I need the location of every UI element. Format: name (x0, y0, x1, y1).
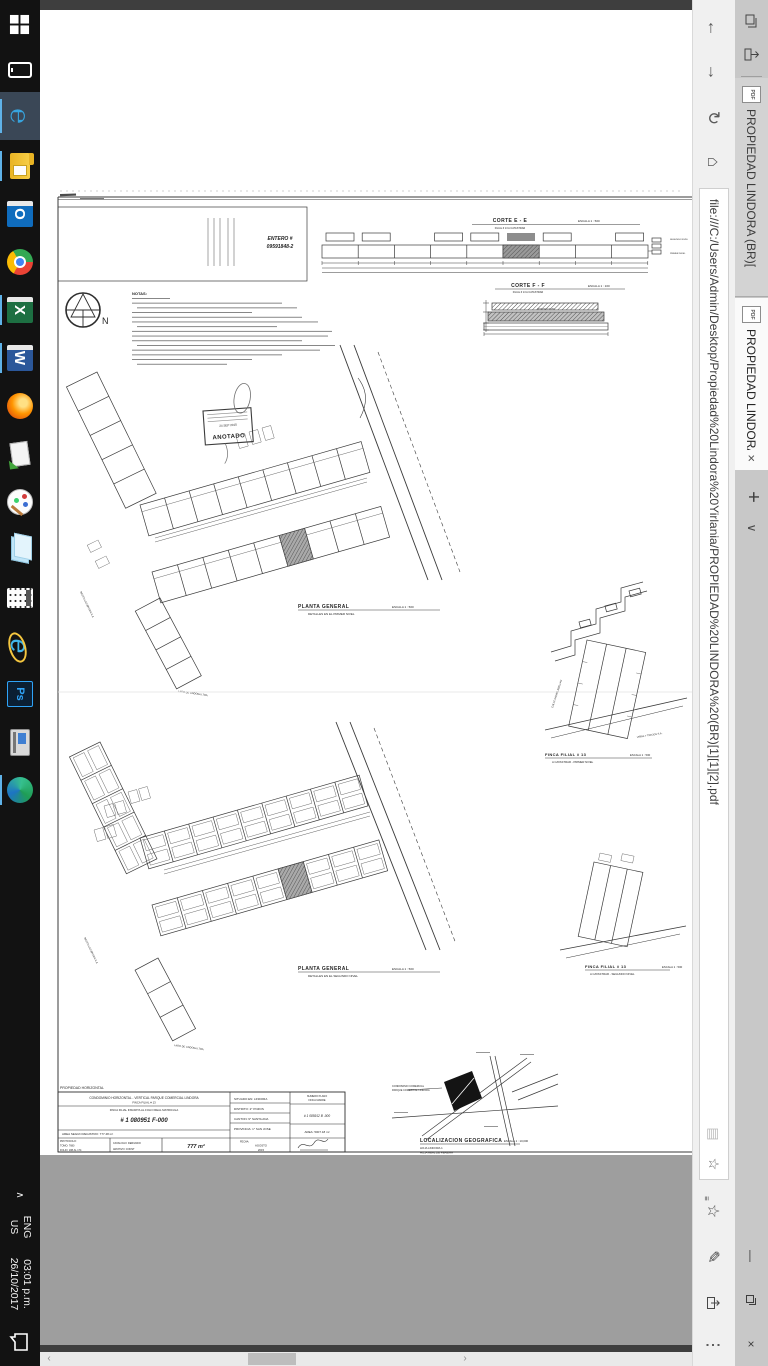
browser-tab-1[interactable]: PDF PROPIEDAD LINDORA (BR)[ (735, 78, 768, 297)
word-icon: W (7, 345, 33, 371)
mail-icon (9, 441, 30, 467)
tb-line2: FINCA FILIAL # 13 (132, 1101, 156, 1105)
finca2-scale: ESCALA 1 : 500 (662, 965, 683, 969)
folder-icon (10, 153, 30, 179)
neighbor-resto-1: RESTO LAS BRISAS S.A. (79, 591, 95, 619)
taskbar-word[interactable]: W (0, 336, 40, 380)
map-pointer-line1: CONDOMINIO COMERCIAL (392, 1085, 425, 1088)
calculator-icon (7, 588, 33, 608)
tb-plano-madre: # 1 085912 B -000 (304, 1114, 330, 1118)
taskbar-mail[interactable] (0, 432, 40, 476)
finca2-sub: A CATASTRAR - SEGUNDO NIVEL (590, 972, 635, 976)
corte-f-scale: ESCALA 1 : 100 (588, 284, 610, 288)
taskbar-outlook[interactable]: O (0, 192, 40, 236)
chrome-icon (7, 249, 33, 275)
edge-address-bar: ← → ↻ ⌂ file:///C:/Users/Admin/Desktop/P… (692, 0, 735, 1366)
globe-icon (7, 777, 33, 803)
map-pointer-line2: PARQUE COMERCIAL LINDORA (392, 1089, 430, 1092)
screen: PDF PROPIEDAD LINDORA (BR)[ PDF PROPIEDA… (0, 0, 768, 1366)
taskbar-firefox[interactable] (0, 384, 40, 428)
new-tab-button[interactable]: + (735, 482, 768, 512)
tabs-set-aside-icon[interactable] (735, 4, 768, 38)
map-sheet1: HOJA LINDORA 1 (420, 1146, 443, 1150)
tb-tomo: TOMO: 7680 (60, 1145, 75, 1148)
restore-window-icon[interactable] (735, 1278, 768, 1322)
tab-bar-separator (741, 76, 762, 77)
location-map: CONDOMINIO COMERCIAL PARQUE COMERCIAL LI… (392, 1052, 558, 1155)
hub-icon[interactable]: ☆≡ (692, 1190, 735, 1232)
street-label: CALLE DANIEL ABELLAN (551, 679, 563, 708)
url-text: file:///C:/Users/Admin/Desktop/Propiedad… (707, 189, 721, 1119)
tb-fecha-year: 2015 (258, 1148, 265, 1152)
taskbar-chrome[interactable] (0, 240, 40, 284)
entero-line2: 09591848-2 (267, 244, 294, 250)
language-line1: ENG (20, 1216, 33, 1239)
forward-icon[interactable]: → (692, 52, 735, 92)
photoshop-icon: Ps (7, 681, 33, 707)
excel-icon: X (7, 297, 33, 323)
map-title: LOCALIZACION GEOGRAFICA (420, 1138, 502, 1144)
tab-preview-chevron-icon[interactable]: ∨ (735, 514, 768, 542)
tb-protocolo: PROTOCOLO: (60, 1140, 77, 1143)
language-line2: US (7, 1220, 20, 1235)
running-indicator (0, 343, 3, 373)
firefox-icon (7, 393, 33, 419)
pdf-file-icon: PDF (742, 306, 761, 323)
finca1-sub: A CATASTRAR - PRIMER NIVEL (552, 760, 594, 764)
share-icon[interactable] (692, 1282, 735, 1324)
clock[interactable]: 03:01 p.m. 26/10/2017 (0, 1248, 40, 1320)
photos-icon (11, 536, 29, 564)
taskbar-internet-explorer[interactable]: e (0, 624, 40, 668)
corte-f-sub: FILIAL # 13 A CATASTRAR (513, 291, 544, 294)
corte-e-lower-level: PRIMER NIVEL (670, 253, 686, 255)
running-indicator (0, 295, 3, 325)
tablet-device-icon[interactable] (0, 48, 40, 92)
stamp-date: 24 SEP 2015 (219, 423, 237, 428)
neighbor-lago-1: LAGO DE LINDORA LTDA. (178, 690, 209, 697)
tb-fecha-label: FECHA: (240, 1141, 249, 1144)
stamp-word: ANOTADO (212, 433, 245, 441)
tb-canton: CANTON: 9° SANTA ANA (234, 1117, 268, 1121)
outlook-icon: O (7, 201, 33, 227)
tb-line3: FINCA FILIAL INSCRITA AL FOLIO REAL MATR… (110, 1108, 179, 1112)
tb-header: PROPIEDAD HORIZONTAL (60, 1086, 104, 1090)
planta1-title: PLANTA GENERAL (298, 604, 349, 610)
taskbar-maps-globe[interactable] (0, 768, 40, 812)
finca-filial-plan-2 (560, 848, 686, 958)
notes-title: NOTAS: (132, 291, 147, 296)
corte-e-upper-level: SEGUNDO NIVEL (670, 239, 689, 241)
close-tab-icon[interactable]: × (744, 454, 759, 462)
planta1-scale: ESCALA 1 : 500 (392, 605, 414, 609)
tab-title: PROPIEDAD LINDORA (BR)[ (745, 109, 759, 288)
internet-explorer-icon: e (6, 632, 34, 660)
minimize-icon[interactable]: — (735, 1234, 768, 1278)
corte-e-scale: ESCALA 1 : 500 (578, 219, 600, 223)
taskbar-photos[interactable] (0, 528, 40, 572)
taskbar-paint[interactable] (0, 480, 40, 524)
tb-numero-plano: NUMERO PLANO (307, 1095, 327, 1098)
edge-tab-bar: PDF PROPIEDAD LINDORA (BR)[ PDF PROPIEDA… (735, 0, 768, 1366)
running-indicator (0, 775, 3, 805)
back-icon[interactable]: ← (692, 8, 735, 48)
window-controls: — × (735, 1234, 768, 1366)
tray-time: 03:01 p.m. (20, 1259, 33, 1309)
tb-finca-madre: FINCA MADRE (308, 1099, 325, 1102)
map-scale: ESCALA 1 : 10,000 (504, 1139, 529, 1143)
home-icon[interactable]: ⌂ (692, 142, 735, 182)
running-indicator (0, 99, 3, 133)
title-block: PROPIEDAD HORIZONTAL CONDOMINIO HORIZONT… (58, 1086, 345, 1152)
finca1-scale: ESCALA 1 : 500 (630, 753, 651, 757)
running-indicator (0, 151, 3, 181)
tray-chevron-icon[interactable]: ∧ (0, 1184, 40, 1206)
more-options-icon[interactable]: ⋮ (692, 1324, 735, 1366)
refresh-icon[interactable]: ↻ (692, 98, 735, 138)
corte-e-title: CORTE E - E (493, 218, 528, 224)
close-window-icon[interactable]: × (735, 1322, 768, 1366)
tb-fecha-month: AGOSTO (255, 1144, 268, 1148)
tb-area-madre: AREA: 5007.18 m² (304, 1130, 329, 1134)
pdf-file-icon: PDF (742, 86, 761, 103)
taskbar: ℮ O X W e Ps ∧ ENG US 03:01 p.m. 26/10/2… (0, 0, 40, 1366)
corte-e-sub: FILIAL # 13 A CATASTRAR (495, 227, 526, 230)
map-sheet2: HOJA REAL DE PEREIRA (420, 1151, 453, 1155)
entero-line1: ENTERO # (267, 236, 292, 242)
language-indicator[interactable]: ENG US (0, 1206, 40, 1248)
tab-title: PROPIEDAD LINDORA ( (745, 329, 759, 450)
address-bar-field[interactable]: file:///C:/Users/Admin/Desktop/Propiedad… (699, 188, 729, 1180)
reading-view-icon[interactable]: ▤ (706, 1119, 723, 1149)
hub-lines-icon: ≡ (702, 1196, 711, 1201)
neighbor-vinas: VIÑAS Y TREJOS S.A. (637, 732, 663, 739)
planta2-sub: DETALLES EN EL SEGUNDO NIVEL (308, 974, 358, 978)
tb-area-registro: AREA SEGUN REGISTRO: 777.48 m² (62, 1132, 113, 1136)
taskbar-photoshop[interactable]: Ps (0, 672, 40, 716)
neighbor-lago-2: LAGO DE LINDORA LTDA. (174, 1044, 205, 1051)
tb-catalogo: CATALOGO: DERIVADO (113, 1142, 141, 1145)
tb-distrito: DISTRITO: 2° POZOS (234, 1107, 264, 1111)
favorite-star-icon[interactable]: ☆ (706, 1149, 723, 1179)
finca2-title: FINCA FILIAL # 13 (585, 964, 627, 969)
tb-area: 777 m² (187, 1143, 205, 1150)
architectural-plan-drawing: ENTERO # 09591848-2 CORTE E - E ESCALA 1… (40, 0, 692, 1366)
planta2-scale: ESCALA 1 : 500 (392, 967, 414, 971)
browser-tab-2[interactable]: PDF PROPIEDAD LINDORA ( × (735, 298, 768, 470)
planta1-sub: DETALLES EN EL PRIMER NIVEL (308, 612, 355, 616)
taskbar-file-explorer[interactable] (0, 144, 40, 188)
web-notes-pen-icon[interactable]: ✎ (692, 1236, 735, 1278)
planta2-title: PLANTA GENERAL (298, 966, 349, 972)
set-tabs-aside-icon[interactable] (735, 38, 768, 72)
tb-plan-number: # 1 080951 F-000 (120, 1118, 168, 1124)
neighbor-resto-2: RESTO LAS BRISAS S.A. (83, 937, 99, 965)
tb-line1: CONDOMINIO HORIZONTAL - VERTICAL PARQUE … (89, 1096, 199, 1100)
action-center-icon[interactable] (0, 1320, 40, 1364)
tb-situado: SITUADO EN: LINDORA (234, 1097, 267, 1101)
tray-date: 26/10/2017 (7, 1258, 20, 1311)
tb-archivo: ARCHIVO: CONST (113, 1148, 135, 1151)
compass-north-label: N (102, 316, 109, 326)
corte-f-title: CORTE F - F (511, 283, 545, 289)
taskbar-excel[interactable]: X (0, 288, 40, 332)
taskbar-edge[interactable]: ℮ (0, 92, 40, 140)
scanner-icon (10, 729, 30, 756)
taskbar-scanner[interactable] (0, 720, 40, 764)
anotado-stamp: 24 SEP 2015 ANOTADO (201, 381, 258, 465)
edge-icon: ℮ (7, 108, 33, 124)
pdf-viewer: ‹ › ENTERO # 09591848-2 CORTE E - E ESCA… (40, 0, 692, 1366)
taskbar-calculator[interactable] (0, 576, 40, 620)
start-button[interactable] (0, 0, 40, 48)
paint-palette-icon (7, 489, 33, 515)
tb-provincia: PROVINCIA: 1° SAN JOSE (234, 1127, 271, 1131)
finca1-title: FINCA FILIAL # 13 (545, 752, 587, 757)
finca-filial-plan-1: CALLE DANIEL ABELLAN VIÑAS Y TREJOS S.A. (545, 582, 687, 739)
